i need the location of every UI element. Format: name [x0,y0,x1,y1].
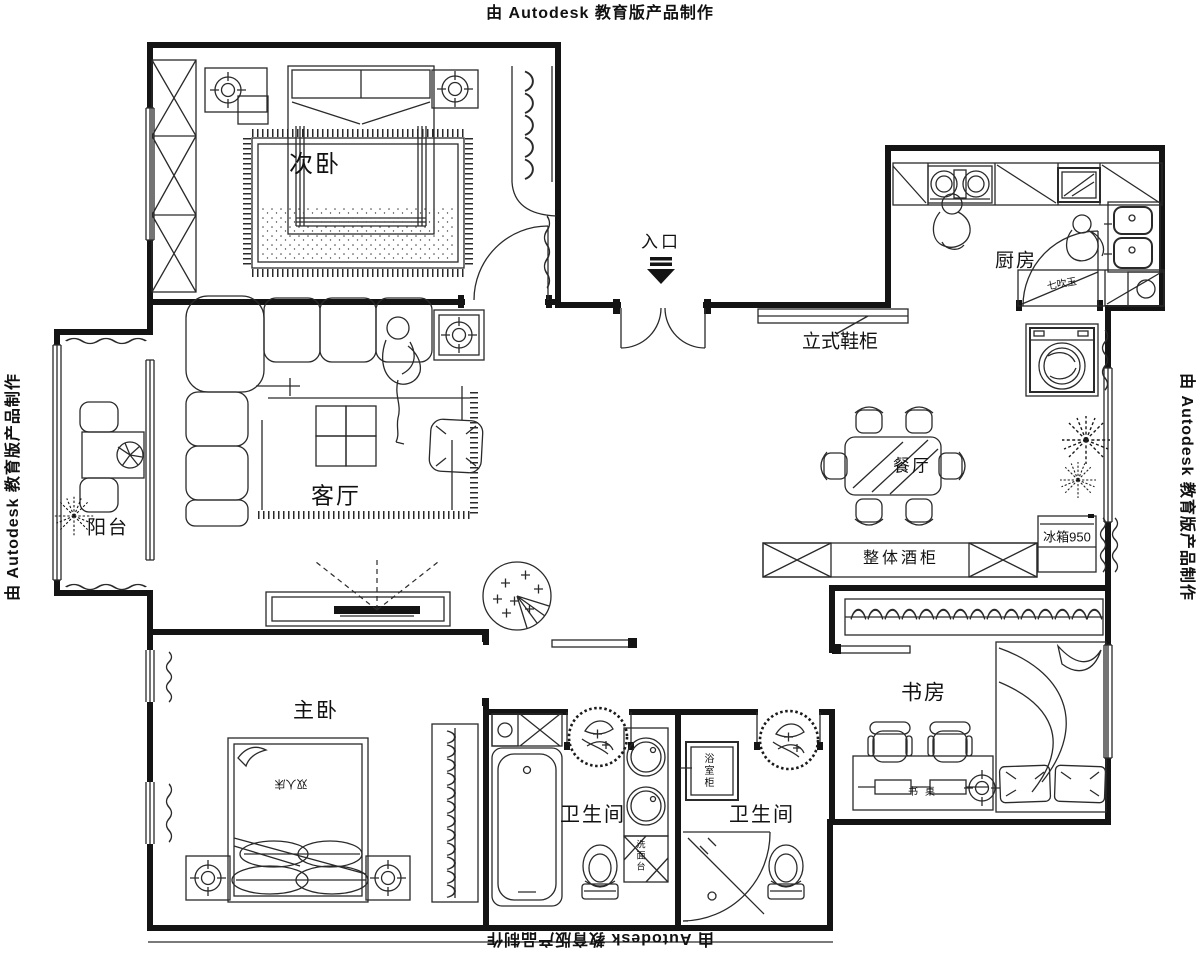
kitchen-lower-cabinet [1018,270,1164,306]
label-secondary-bedroom: 次卧 [289,153,341,177]
label-double-bed: 双人床 [275,778,308,789]
balcony-table [82,432,144,478]
nightstand [186,856,230,900]
label-desk: 书桌 [908,788,942,798]
balcony-chair [80,402,118,432]
balcony [55,339,146,590]
person-figure [933,194,970,249]
watermark-left: 由 Autodesk 教育版产品制作 [6,373,22,601]
label-bathroom-left: 卫生间 [560,805,626,825]
label-dining-room: 餐厅 [893,458,931,475]
dining-chair [905,407,933,433]
wardrobe [152,60,196,292]
study [845,599,1106,812]
balcony-plant-pot [117,442,143,468]
single-bed [996,642,1106,812]
nightstand [432,70,478,108]
toilet [582,845,618,899]
balcony-chair [80,478,118,512]
secondary-bedroom [152,60,556,292]
radiator-band [845,599,1103,635]
desk [853,756,1000,810]
dining-plant [1060,462,1096,498]
master-bedroom [167,652,479,902]
bathtub [492,714,562,906]
floor-plan: 由 Autodesk 教育版产品制作 由 Autodesk 教育版产品制作 由 … [0,0,1200,960]
doorway-plant [569,708,627,766]
label-living-room: 客厅 [311,485,361,508]
label-study: 书房 [901,683,947,704]
radiator-column [432,724,478,902]
label-basin-counter: 洗面台 [636,840,645,873]
dining-plant [1062,416,1110,464]
study-sliding-door [832,644,910,654]
coffee-table [256,378,470,510]
vanity-double-sink [624,728,668,882]
label-kitchen: 厨房 [995,252,1037,271]
bathroom-door-jambs [564,712,823,750]
corridor-plant [483,562,551,630]
entrance-arrow-icon [647,257,675,284]
dining-chair [821,452,847,480]
microwave [1058,168,1100,202]
washing-machine [1026,324,1108,396]
watermark-bottom: 由 Autodesk 教育版产品制作 [486,930,714,946]
dining-chair [905,499,933,525]
floor-cushion [429,419,484,474]
rug [247,133,469,273]
rug-fringe [258,392,474,515]
entry-double-door [613,299,711,348]
dining-chair [855,407,883,433]
label-bathroom-right: 卫生间 [729,805,795,825]
kitchen-sink [1104,202,1160,272]
dining-chair [939,452,965,480]
curtain-coil [512,66,556,216]
person-figure [383,317,421,444]
nightstand [366,856,410,900]
double-bed [228,738,368,902]
tv-cabinet [266,556,450,626]
watermark-top: 由 Autodesk 教育版产品制作 [486,6,714,22]
shower [683,832,770,921]
master-bedroom-door [482,634,637,706]
label-fridge: 冰箱950 [1043,531,1091,544]
dining-chair [855,499,883,525]
label-entrance: 入口 [641,234,681,251]
doorway-plant [760,711,818,769]
label-balcony: 阳台 [87,519,129,538]
kitchen [893,163,1164,306]
shoe-cabinet [758,309,908,334]
dresser [205,68,268,124]
label-wine-cabinet: 整体酒柜 [863,551,939,567]
side-table [434,310,484,360]
toilet [768,845,804,899]
sofa [186,296,432,526]
entry-curtain [545,216,550,288]
watermark-right: 由 Autodesk 教育版产品制作 [1178,373,1194,601]
label-master-bedroom: 主卧 [293,701,339,722]
label-shoe-cabinet: 立式鞋柜 [802,333,878,352]
dining-room [821,407,1110,525]
label-bath-cabinet: 浴室柜 [702,753,712,789]
